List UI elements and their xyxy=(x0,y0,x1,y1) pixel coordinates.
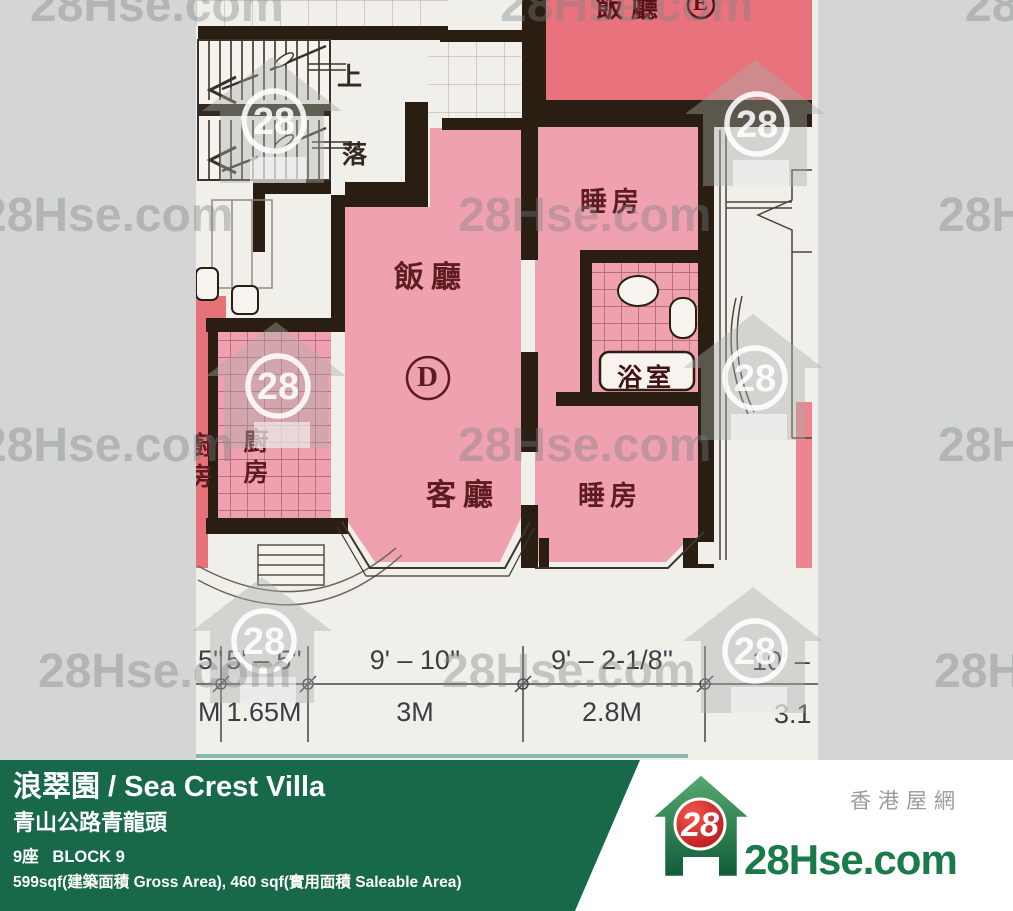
watermark-text: 28Hse.com xyxy=(938,188,1013,243)
unit-d-dining-area xyxy=(430,128,521,210)
site-logo-text: 28Hse.com xyxy=(744,836,957,884)
watermark-text: 28Hse.com xyxy=(965,0,1013,33)
dim-bottom-4: 3.1 xyxy=(774,699,812,730)
stair-up-label: 上 xyxy=(337,57,362,93)
dining-room-label: 飯廳 xyxy=(394,252,468,296)
listing-info-banner: 浪翠園 / Sea Crest Villa 青山公路青龍頭 9座 BLOCK 9… xyxy=(0,760,1013,911)
dim-bottom-0: M xyxy=(198,697,221,728)
kitchen-label: 廚房 xyxy=(236,428,272,490)
dim-bottom-3: 2.8M xyxy=(537,697,687,728)
dim-bottom-1: 1.65M xyxy=(219,697,309,728)
watermark-text: 28Hse.com xyxy=(934,644,1013,699)
dim-bottom-2: 3M xyxy=(360,697,470,728)
estate-area: 599sqf(建築面積 Gross Area), 460 sqf(實用面積 Sa… xyxy=(13,870,462,892)
unit-e-area xyxy=(546,0,812,100)
bathroom-label: 浴室 xyxy=(617,358,675,394)
photo-bottom-strip xyxy=(196,754,688,758)
site-logo-house-icon: 28 xyxy=(650,773,752,879)
listing-image: 上 落 飯廳 E 飯廳 D 客廳 睡房 睡房 浴室 廚房 廚房 5'' 5' –… xyxy=(0,0,1013,911)
unit-e-dining-label: 飯廳 xyxy=(596,0,666,25)
dim-top-1: 5' – 5'' xyxy=(219,645,309,676)
estate-block: 9座 BLOCK 9 xyxy=(13,843,125,867)
stair-down-label: 落 xyxy=(342,135,367,171)
dim-top-4: 10' – xyxy=(752,646,810,677)
bedroom-bottom-label: 睡房 xyxy=(578,474,642,513)
unit-d-letter: D xyxy=(417,361,438,394)
estate-title: 浪翠園 / Sea Crest Villa xyxy=(13,763,325,805)
floorplan-image: 上 落 飯廳 E 飯廳 D 客廳 睡房 睡房 浴室 廚房 廚房 5'' 5' –… xyxy=(196,0,818,760)
adjacent-kitchen-label: 廚房 xyxy=(196,432,216,494)
site-logo-number: 28 xyxy=(680,806,719,844)
living-room-label: 客廳 xyxy=(426,470,500,514)
unit-e-letter: E xyxy=(693,0,708,16)
bedroom-top-label: 睡房 xyxy=(580,180,644,219)
dim-top-2: 9' – 10'' xyxy=(360,645,470,676)
site-logo-tagline: 香港屋網 xyxy=(850,785,962,815)
watermark-text: 28Hse.com xyxy=(938,418,1013,473)
estate-address: 青山公路青龍頭 xyxy=(13,805,167,837)
dim-top-3: 9' – 2-1/8'' xyxy=(537,645,687,676)
